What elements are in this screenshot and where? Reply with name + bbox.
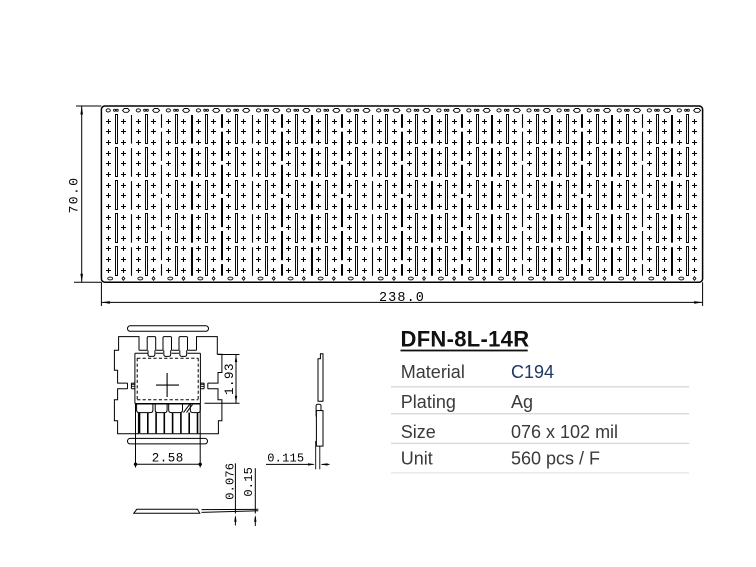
svg-text:0.15: 0.15 [242, 467, 256, 497]
svg-text:2.58: 2.58 [152, 452, 184, 466]
svg-text:Ag: Ag [511, 392, 533, 412]
svg-text:0.115: 0.115 [267, 452, 304, 466]
svg-text:Plating: Plating [401, 392, 456, 412]
svg-text:076 x 102 mil: 076 x 102 mil [511, 422, 618, 442]
svg-text:0.076: 0.076 [224, 463, 238, 500]
svg-text:1.93: 1.93 [223, 363, 237, 395]
svg-text:238.0: 238.0 [379, 291, 425, 306]
svg-text:Unit: Unit [401, 449, 433, 469]
svg-text:70.0: 70.0 [67, 177, 82, 214]
svg-text:560 pcs / F: 560 pcs / F [511, 449, 600, 469]
svg-text:C194: C194 [511, 362, 554, 382]
svg-text:Material: Material [401, 362, 465, 382]
svg-text:Size: Size [401, 422, 436, 442]
svg-text:DFN-8L-14R: DFN-8L-14R [401, 326, 530, 351]
